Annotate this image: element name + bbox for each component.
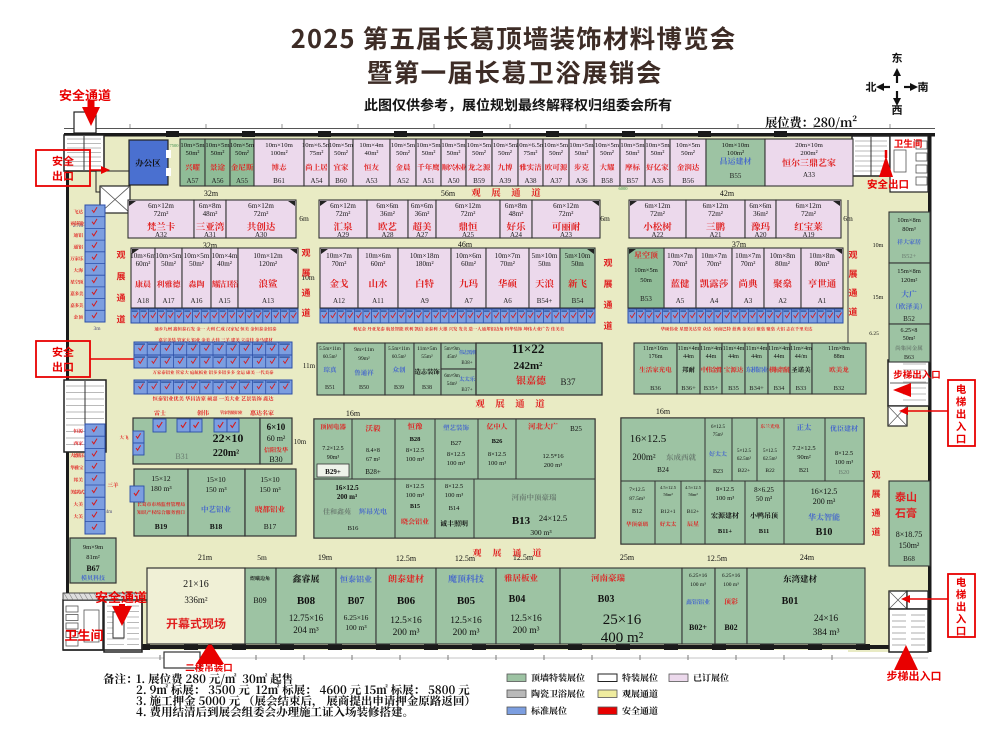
svg-text:B36: B36: [650, 385, 662, 392]
svg-text:44m: 44m: [728, 354, 739, 360]
svg-text:25m: 25m: [620, 553, 635, 562]
svg-text:75m²: 75m²: [310, 150, 324, 157]
svg-text:55m²: 55m²: [421, 354, 433, 360]
svg-text:A23: A23: [560, 231, 573, 239]
svg-text:B15: B15: [410, 504, 420, 510]
svg-text:6.25×16: 6.25×16: [689, 573, 707, 579]
svg-text:10m×8m: 10m×8m: [770, 252, 796, 260]
svg-text:6m×9m: 6m×9m: [444, 374, 460, 379]
svg-text:150m²: 150m²: [899, 541, 920, 550]
svg-text:B30: B30: [269, 455, 282, 464]
svg-text:A29: A29: [337, 231, 350, 239]
svg-text:10m×5m: 10m×5m: [205, 142, 230, 149]
svg-text:B34+: B34+: [749, 385, 764, 392]
svg-text:5×12.5: 5×12.5: [763, 449, 778, 454]
svg-text:200 m³: 200 m³: [337, 493, 357, 501]
svg-text:100 m³: 100 m³: [690, 582, 706, 588]
svg-text:99m²: 99m²: [358, 356, 370, 362]
svg-text:B20: B20: [839, 469, 850, 476]
svg-text:50m: 50m: [571, 260, 584, 268]
svg-text:10m×5m: 10m×5m: [645, 142, 670, 149]
svg-text:B63: B63: [904, 355, 914, 361]
svg-text:A7: A7: [464, 297, 473, 305]
svg-text:B56: B56: [682, 177, 694, 185]
svg-text:11m: 11m: [303, 362, 316, 370]
svg-text:B16: B16: [348, 525, 360, 532]
svg-text:70m²: 70m²: [707, 260, 722, 268]
svg-text:B05: B05: [457, 595, 476, 607]
svg-text:B61: B61: [273, 177, 285, 185]
svg-text:70m²: 70m²: [673, 260, 688, 268]
svg-text:10m×5m: 10m×5m: [569, 142, 594, 149]
svg-text:44m: 44m: [751, 354, 762, 360]
svg-text:50m²: 50m²: [472, 150, 486, 157]
svg-text:72m²: 72m²: [461, 210, 476, 218]
svg-text:6m: 6m: [843, 214, 853, 223]
svg-text:6m×8m: 6m×8m: [505, 202, 528, 210]
svg-text:60.5m²: 60.5m²: [323, 354, 338, 360]
svg-text:16m: 16m: [346, 409, 361, 418]
svg-text:5m×10m: 5m×10m: [565, 252, 591, 260]
svg-text:60.5m²: 60.5m²: [392, 354, 407, 360]
svg-text:200 m³: 200 m³: [513, 626, 540, 636]
svg-text:50m²: 50m²: [549, 150, 563, 157]
svg-text:A15: A15: [218, 297, 231, 305]
svg-text:B33: B33: [796, 385, 807, 392]
svg-text:56m: 56m: [441, 189, 456, 198]
svg-text:60m²: 60m²: [461, 260, 476, 268]
svg-text:44m: 44m: [774, 354, 785, 360]
svg-text:A30: A30: [255, 231, 268, 239]
svg-text:32m: 32m: [204, 189, 219, 198]
svg-text:11m×4m: 11m×4m: [700, 346, 722, 352]
svg-text:62.5m²: 62.5m²: [737, 456, 752, 462]
svg-text:A36: A36: [575, 177, 588, 185]
svg-text:50m²: 50m²: [235, 150, 249, 157]
svg-text:22×10: 22×10: [213, 431, 244, 445]
svg-text:15×10: 15×10: [260, 475, 279, 484]
svg-text:200 m³: 200 m³: [453, 628, 480, 638]
svg-text:11m×16m: 11m×16m: [643, 346, 668, 352]
svg-text:70m²: 70m²: [741, 260, 756, 268]
svg-text:A51: A51: [422, 177, 435, 185]
svg-text:B31: B31: [175, 452, 188, 461]
svg-text:10m×5m: 10m×5m: [180, 142, 205, 149]
svg-text:10m×7m: 10m×7m: [735, 252, 761, 260]
svg-text:15×12: 15×12: [151, 474, 170, 483]
svg-text:5.5m×11m: 5.5m×11m: [388, 347, 410, 352]
svg-text:12.5m: 12.5m: [707, 554, 728, 563]
svg-text:7500: 7500: [170, 143, 180, 148]
svg-text:A20: A20: [754, 231, 767, 239]
svg-text:B68: B68: [903, 555, 915, 563]
svg-text:40m²: 40m²: [217, 260, 232, 268]
svg-text:21m: 21m: [198, 553, 213, 562]
svg-text:48m²: 48m²: [203, 210, 218, 218]
svg-text:50m²: 50m²: [161, 260, 176, 268]
svg-text:6.25×8: 6.25×8: [901, 328, 918, 334]
svg-text:50m²: 50m²: [396, 150, 410, 157]
svg-text:72m²: 72m²: [650, 210, 665, 218]
svg-text:16×12.5: 16×12.5: [630, 433, 667, 445]
svg-text:6m×12m: 6m×12m: [703, 202, 729, 210]
svg-text:A27: A27: [416, 231, 429, 239]
svg-text:B07: B07: [348, 596, 365, 607]
svg-text:12.5×16: 12.5×16: [450, 616, 482, 626]
svg-text:12.5m: 12.5m: [455, 554, 476, 563]
svg-text:36m²: 36m²: [415, 210, 430, 218]
svg-text:10m×7m: 10m×7m: [701, 252, 727, 260]
svg-text:B24: B24: [657, 466, 669, 474]
svg-text:A28: A28: [381, 231, 394, 239]
svg-text:A39: A39: [499, 177, 512, 185]
svg-text:B53: B53: [640, 295, 652, 303]
svg-text:B37: B37: [560, 377, 576, 387]
svg-text:36m²: 36m²: [753, 210, 768, 218]
svg-text:50m²: 50m²: [186, 150, 200, 157]
svg-text:B22+: B22+: [738, 468, 750, 474]
svg-text:4.5×12.5: 4.5×12.5: [660, 485, 677, 490]
svg-text:54m²: 54m²: [447, 381, 458, 387]
svg-text:8×12.5: 8×12.5: [445, 483, 463, 490]
svg-text:80m³: 80m³: [902, 226, 916, 233]
svg-text:176m: 176m: [649, 354, 663, 360]
svg-text:72m²: 72m²: [708, 210, 723, 218]
svg-text:B01: B01: [782, 596, 799, 607]
svg-text:A54: A54: [310, 177, 323, 185]
svg-text:10m×7m: 10m×7m: [495, 252, 521, 260]
svg-text:48m²: 48m²: [509, 210, 524, 218]
svg-text:B21: B21: [799, 468, 809, 474]
svg-text:56m²: 56m²: [688, 492, 698, 497]
svg-text:7.2×12.5: 7.2×12.5: [792, 445, 815, 452]
svg-text:100 m³: 100 m³: [488, 460, 506, 467]
svg-text:B22: B22: [765, 468, 774, 474]
svg-text:A6: A6: [503, 297, 512, 305]
svg-text:72m²: 72m²: [559, 210, 574, 218]
svg-text:60m²: 60m²: [371, 260, 386, 268]
svg-text:A13: A13: [262, 297, 275, 305]
svg-text:25×16: 25×16: [603, 612, 642, 628]
svg-text:B32: B32: [834, 385, 845, 392]
svg-text:6m×12m: 6m×12m: [455, 202, 481, 210]
svg-text:A11: A11: [372, 297, 384, 305]
svg-text:12.5m: 12.5m: [396, 554, 417, 563]
svg-text:81m²: 81m²: [86, 554, 100, 561]
svg-text:62.5m²: 62.5m²: [763, 456, 778, 462]
svg-text:A55: A55: [236, 177, 249, 185]
svg-text:B50: B50: [359, 385, 369, 391]
svg-text:90m²: 90m²: [797, 454, 811, 461]
svg-text:B11: B11: [759, 528, 769, 535]
svg-text:B67: B67: [86, 564, 99, 573]
svg-text:6×10: 6×10: [267, 422, 286, 432]
svg-text:16m: 16m: [656, 407, 671, 416]
svg-text:12.5×16: 12.5×16: [510, 614, 542, 624]
svg-text:6.25×16: 6.25×16: [722, 573, 740, 579]
svg-text:24m: 24m: [800, 553, 815, 562]
svg-text:10m×8m: 10m×8m: [897, 217, 921, 224]
svg-text:10m×12m: 10m×12m: [253, 252, 283, 260]
svg-text:204 m³: 204 m³: [293, 625, 319, 635]
svg-text:8×12.5: 8×12.5: [406, 483, 424, 490]
svg-text:10m×18m: 10m×18m: [410, 252, 440, 260]
svg-text:5.5m×11m: 5.5m×11m: [319, 347, 341, 352]
svg-text:B58: B58: [601, 177, 613, 185]
svg-text:19m: 19m: [318, 553, 333, 562]
svg-text:44m: 44m: [706, 354, 717, 360]
svg-text:60 m²: 60 m²: [267, 434, 286, 443]
svg-text:50m²: 50m²: [422, 150, 436, 157]
svg-text:A57: A57: [186, 177, 199, 185]
svg-text:11m×8m: 11m×8m: [828, 346, 850, 352]
svg-text:8×12.5: 8×12.5: [447, 451, 465, 458]
svg-text:A9: A9: [420, 297, 429, 305]
svg-text:B27: B27: [451, 440, 463, 447]
svg-text:B52+: B52+: [902, 253, 917, 260]
svg-text:12.5*16: 12.5*16: [542, 453, 564, 460]
svg-text:100 m³: 100 m³: [406, 456, 424, 463]
svg-text:A38: A38: [524, 177, 537, 185]
svg-text:8×12.5: 8×12.5: [488, 451, 506, 458]
svg-text:B18: B18: [210, 522, 223, 531]
svg-text:50m²: 50m²: [447, 150, 461, 157]
svg-text:6m×12m: 6m×12m: [796, 202, 822, 210]
svg-text:A19: A19: [802, 231, 815, 239]
svg-text:8×6.25: 8×6.25: [754, 486, 774, 494]
svg-text:10m×5m: 10m×5m: [416, 142, 441, 149]
svg-text:8×12.5: 8×12.5: [716, 486, 734, 493]
svg-text:B12+1: B12+1: [660, 509, 675, 515]
svg-text:10m×6.5m: 10m×6.5m: [302, 142, 332, 149]
svg-text:150 m³: 150 m³: [205, 485, 227, 494]
svg-text:B04: B04: [509, 594, 526, 605]
svg-text:50m²: 50m²: [626, 150, 640, 157]
svg-text:15m: 15m: [873, 295, 884, 301]
svg-text:180m²: 180m²: [415, 260, 433, 268]
svg-text:120m²: 120m²: [259, 260, 277, 268]
svg-text:6m×6m: 6m×6m: [376, 202, 399, 210]
svg-text:72m²: 72m²: [254, 210, 269, 218]
svg-text:8.4×8: 8.4×8: [366, 448, 380, 454]
svg-text:A2: A2: [778, 297, 787, 305]
svg-text:100m²: 100m²: [270, 150, 287, 157]
svg-text:8×12.5: 8×12.5: [406, 447, 424, 454]
svg-text:6m×12m: 6m×12m: [553, 202, 579, 210]
svg-text:12.75×16: 12.75×16: [289, 613, 324, 623]
svg-text:11m×5m: 11m×5m: [417, 346, 437, 352]
svg-text:120m²: 120m²: [901, 277, 918, 284]
svg-text:10m×5m: 10m×5m: [467, 142, 492, 149]
svg-text:A16: A16: [190, 297, 203, 305]
svg-text:B54: B54: [572, 297, 584, 305]
svg-text:10m×5m: 10m×5m: [544, 142, 569, 149]
svg-text:B52: B52: [903, 315, 915, 323]
svg-text:B60: B60: [335, 177, 347, 185]
svg-text:B29+: B29+: [325, 468, 341, 476]
svg-text:10m×5m: 10m×5m: [634, 267, 658, 274]
svg-text:B12+: B12+: [687, 509, 699, 515]
svg-text:10m×10m: 10m×10m: [265, 142, 293, 149]
svg-text:10m×10m: 10m×10m: [722, 142, 750, 149]
svg-text:A5: A5: [676, 297, 685, 305]
svg-text:A56: A56: [211, 177, 224, 185]
svg-text:100 m³: 100 m³: [345, 623, 367, 632]
svg-text:B11+: B11+: [718, 528, 732, 535]
svg-text:100 m³: 100 m³: [723, 582, 739, 588]
svg-text:A35: A35: [651, 177, 664, 185]
svg-text:6m: 6m: [299, 214, 309, 223]
svg-text:72m²: 72m²: [801, 210, 816, 218]
svg-text:B36+: B36+: [681, 385, 696, 392]
svg-text:B34: B34: [774, 385, 786, 392]
svg-text:72m²: 72m²: [154, 210, 169, 218]
svg-text:B06: B06: [397, 595, 416, 607]
svg-text:50m²: 50m²: [211, 150, 225, 157]
svg-text:8×18.75: 8×18.75: [896, 530, 923, 539]
svg-text:50m²: 50m²: [600, 150, 614, 157]
svg-text:B08: B08: [297, 595, 316, 607]
svg-text:A24: A24: [510, 231, 523, 239]
svg-text:50m²: 50m²: [334, 150, 348, 157]
svg-text:B25: B25: [570, 425, 582, 433]
svg-text:B54+: B54+: [537, 297, 553, 305]
svg-text:100 m³: 100 m³: [445, 492, 463, 499]
svg-text:6m×6m: 6m×6m: [749, 202, 772, 210]
svg-text:9m×9m: 9m×9m: [83, 544, 103, 551]
svg-text:A33: A33: [803, 171, 816, 179]
svg-text:B57: B57: [627, 177, 639, 185]
svg-text:A31: A31: [204, 231, 217, 239]
svg-text:20m×10m: 20m×10m: [795, 142, 823, 149]
svg-text:10m×5m: 10m×5m: [230, 142, 255, 149]
svg-text:6.25: 6.25: [869, 331, 879, 337]
svg-text:10m×5m: 10m×5m: [184, 252, 210, 260]
svg-text:56m²: 56m²: [663, 492, 673, 497]
svg-text:10m: 10m: [873, 243, 884, 249]
svg-text:B35: B35: [728, 385, 739, 392]
svg-text:10m×5m: 10m×5m: [595, 142, 620, 149]
svg-text:11m×4m: 11m×4m: [768, 346, 790, 352]
svg-text:A17: A17: [162, 297, 175, 305]
svg-text:50m²: 50m²: [498, 150, 512, 157]
svg-text:100m²: 100m²: [727, 150, 744, 157]
svg-text:B26: B26: [492, 438, 504, 445]
svg-text:24×16: 24×16: [814, 614, 839, 624]
svg-text:B10: B10: [816, 527, 833, 538]
svg-text:24×12.5: 24×12.5: [539, 513, 567, 523]
svg-text:70m²: 70m²: [500, 260, 515, 268]
svg-text:50 m³: 50 m³: [756, 495, 772, 503]
svg-text:B14: B14: [449, 505, 461, 512]
svg-text:10m×6m: 10m×6m: [365, 252, 391, 260]
svg-text:B59: B59: [473, 177, 485, 185]
svg-text:A25: A25: [462, 231, 475, 239]
svg-text:384 m³: 384 m³: [813, 628, 840, 638]
svg-text:B17: B17: [264, 522, 277, 531]
svg-text:10m×5m: 10m×5m: [493, 142, 518, 149]
svg-text:44m: 44m: [683, 354, 694, 360]
svg-text:50m: 50m: [538, 260, 551, 268]
svg-text:3m: 3m: [93, 326, 101, 332]
svg-text:B23: B23: [713, 469, 723, 475]
svg-text:10m×6.5m: 10m×6.5m: [516, 142, 546, 149]
svg-text:50m²: 50m²: [681, 150, 695, 157]
svg-text:5m: 5m: [257, 553, 267, 562]
svg-text:10m×4m: 10m×4m: [359, 142, 384, 149]
svg-text:B39: B39: [394, 385, 404, 391]
svg-text:75m²: 75m²: [713, 432, 724, 438]
svg-text:80m²: 80m²: [815, 260, 830, 268]
svg-text:100 m³: 100 m³: [447, 460, 465, 467]
svg-text:6m×6m: 6m×6m: [411, 202, 434, 210]
svg-text:15×10: 15×10: [206, 475, 225, 484]
svg-text:B03: B03: [598, 594, 615, 605]
svg-text:A1: A1: [818, 297, 827, 305]
svg-text:72m²: 72m²: [336, 210, 351, 218]
svg-text:6000: 6000: [619, 186, 629, 191]
svg-text:A3: A3: [744, 297, 753, 305]
svg-text:6.25×16: 6.25×16: [344, 613, 369, 622]
svg-text:50m²: 50m²: [903, 336, 916, 342]
svg-text:75m²: 75m²: [524, 150, 538, 157]
svg-text:90m³: 90m³: [327, 455, 340, 461]
svg-text:100 m³: 100 m³: [406, 492, 424, 499]
svg-text:300 m³: 300 m³: [530, 528, 552, 537]
svg-text:50m: 50m: [640, 277, 652, 284]
svg-text:8×12.5: 8×12.5: [835, 450, 853, 457]
svg-text:A4: A4: [710, 297, 719, 305]
svg-text:42m: 42m: [720, 189, 735, 198]
svg-text:5m×10m: 5m×10m: [532, 252, 558, 260]
svg-text:40m²: 40m²: [365, 150, 379, 157]
svg-text:88m: 88m: [834, 354, 845, 360]
svg-text:200 m³: 200 m³: [544, 462, 562, 469]
svg-text:A22: A22: [651, 231, 664, 239]
svg-text:12.5×16: 12.5×16: [390, 616, 422, 626]
svg-text:B02+: B02+: [689, 623, 707, 632]
svg-text:10m×5m: 10m×5m: [329, 142, 354, 149]
svg-text:B38: B38: [422, 385, 432, 391]
svg-text:6m: 6m: [600, 214, 610, 223]
svg-text:67 m²: 67 m²: [366, 457, 380, 463]
svg-text:87.5m³: 87.5m³: [629, 496, 645, 502]
svg-text:7.2×12.5: 7.2×12.5: [322, 446, 343, 452]
svg-text:10m×5m: 10m×5m: [676, 142, 701, 149]
svg-text:200m²: 200m²: [632, 452, 656, 462]
svg-text:10m×7m: 10m×7m: [667, 252, 693, 260]
svg-text:6m×12m: 6m×12m: [148, 202, 174, 210]
svg-text:A32: A32: [155, 231, 168, 239]
svg-text:6×12.5: 6×12.5: [711, 425, 726, 430]
svg-text:10m×8m: 10m×8m: [809, 252, 835, 260]
svg-text:B55: B55: [730, 172, 742, 180]
svg-text:11m×4m: 11m×4m: [746, 346, 768, 352]
svg-text:10m×5m: 10m×5m: [156, 252, 182, 260]
svg-text:200 m³: 200 m³: [393, 628, 420, 638]
svg-text:B35+: B35+: [704, 385, 719, 392]
svg-text:6m×8m: 6m×8m: [199, 202, 222, 210]
svg-text:10m×7m: 10m×7m: [326, 252, 352, 260]
svg-text:A12: A12: [333, 297, 346, 305]
svg-text:B38+: B38+: [461, 361, 472, 366]
svg-text:16×12.5: 16×12.5: [811, 487, 838, 496]
svg-text:B02: B02: [724, 623, 737, 632]
svg-text:B28: B28: [410, 436, 422, 443]
svg-text:200m²: 200m²: [800, 150, 817, 157]
svg-text:10m: 10m: [294, 438, 307, 446]
svg-text:100 m³: 100 m³: [716, 495, 734, 502]
